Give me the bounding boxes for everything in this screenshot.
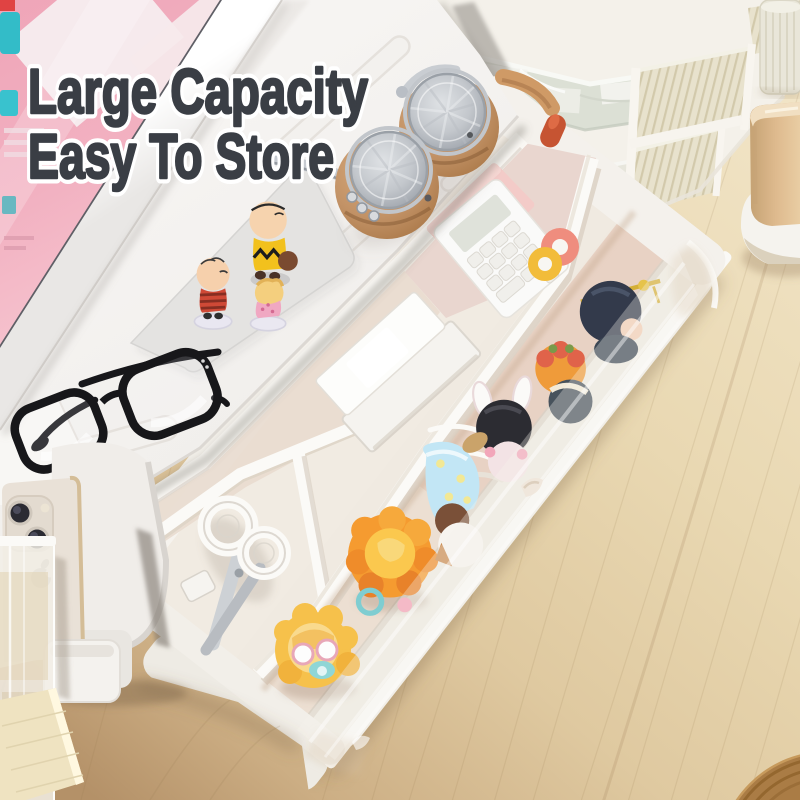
svg-text:Easy To Store: Easy To Store [28,122,334,192]
svg-text:Large Capacity: Large Capacity [28,57,368,127]
